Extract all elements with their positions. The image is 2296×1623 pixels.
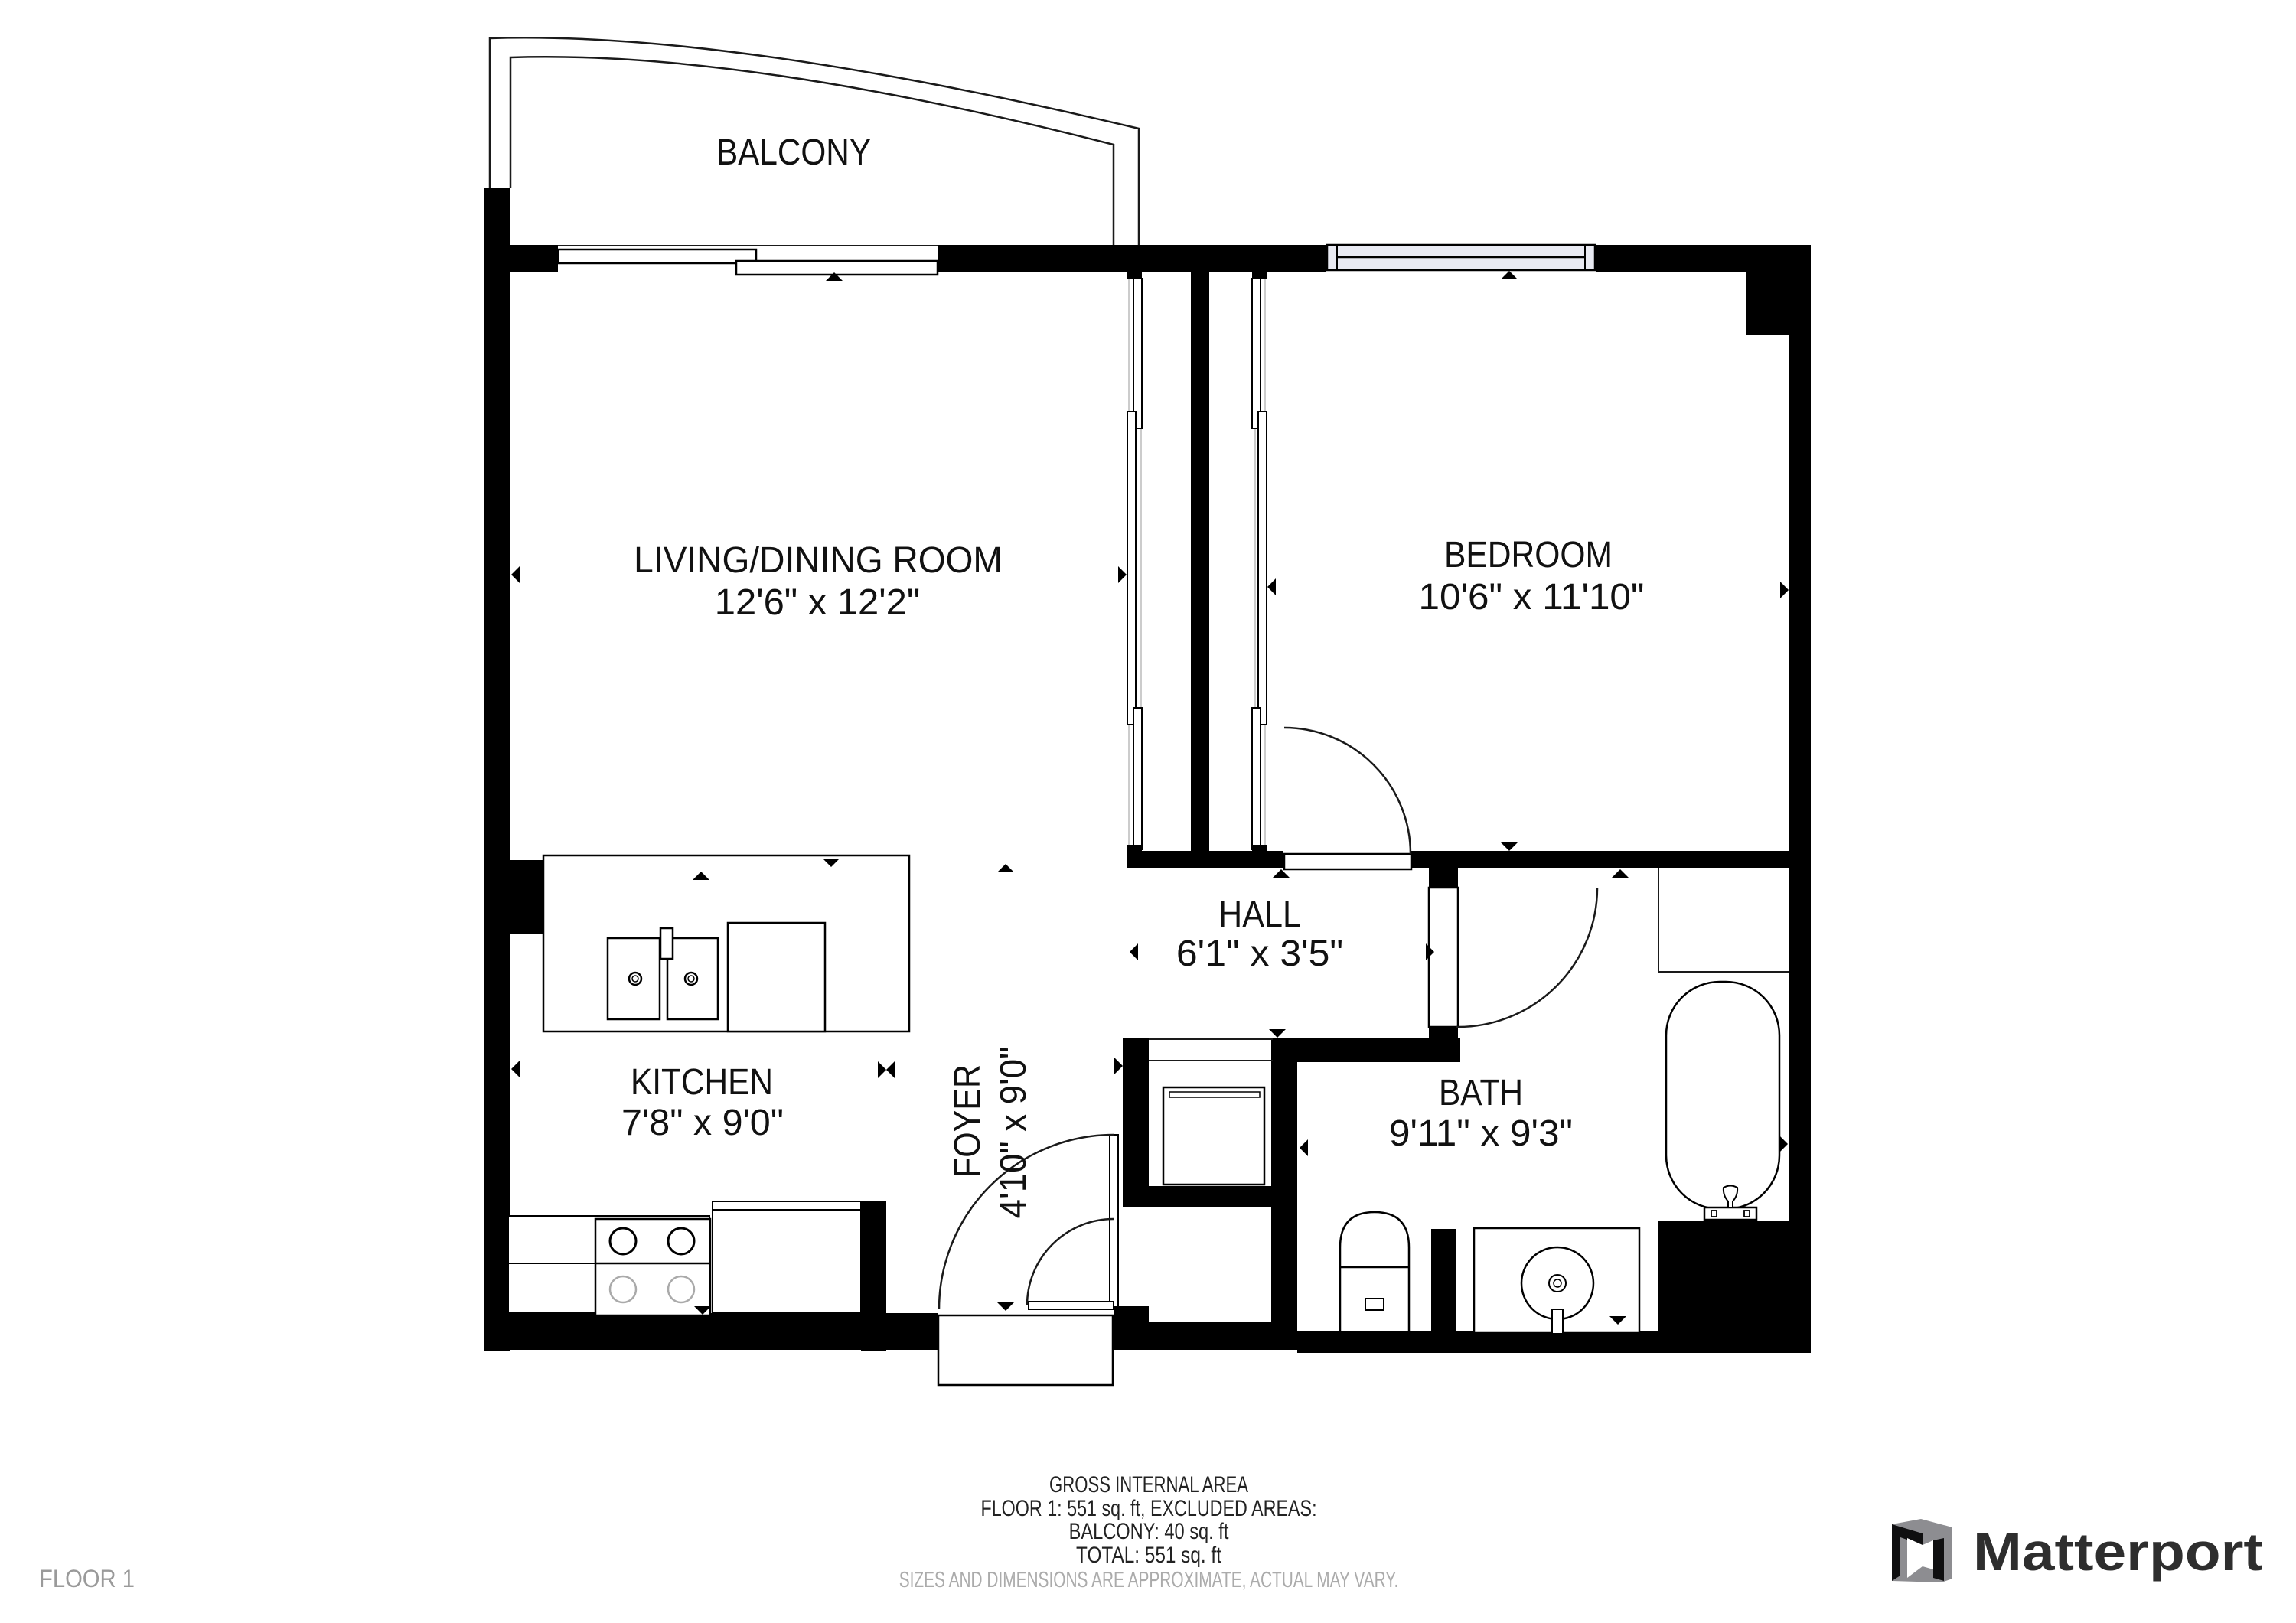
svg-text:12'6" x 12'2": 12'6" x 12'2" bbox=[715, 582, 920, 622]
svg-text:7'8" x 9'0": 7'8" x 9'0" bbox=[621, 1102, 784, 1143]
svg-text:9'11" x 9'3": 9'11" x 9'3" bbox=[1389, 1113, 1573, 1154]
svg-text:BEDROOM: BEDROOM bbox=[1444, 534, 1613, 575]
svg-text:HALL: HALL bbox=[1218, 894, 1301, 935]
svg-text:KITCHEN: KITCHEN bbox=[631, 1061, 773, 1103]
svg-text:SIZES AND DIMENSIONS ARE APPRO: SIZES AND DIMENSIONS ARE APPROXIMATE, AC… bbox=[899, 1568, 1399, 1592]
svg-text:BALCONY: BALCONY bbox=[716, 131, 871, 172]
svg-text:Matterport: Matterport bbox=[1973, 1522, 2263, 1582]
svg-text:FOYER: FOYER bbox=[947, 1064, 988, 1178]
svg-text:FLOOR 1: 551 sq. ft, EXCLUDED: FLOOR 1: 551 sq. ft, EXCLUDED AREAS: bbox=[980, 1495, 1316, 1521]
svg-text:TOTAL: 551 sq. ft: TOTAL: 551 sq. ft bbox=[1076, 1542, 1221, 1568]
svg-text:6'1" x 3'5": 6'1" x 3'5" bbox=[1176, 934, 1343, 974]
svg-text:BATH: BATH bbox=[1439, 1072, 1523, 1113]
svg-text:LIVING/DINING ROOM: LIVING/DINING ROOM bbox=[634, 539, 1003, 580]
svg-text:FLOOR 1: FLOOR 1 bbox=[39, 1566, 135, 1593]
svg-text:BALCONY: 40 sq. ft: BALCONY: 40 sq. ft bbox=[1069, 1518, 1229, 1543]
svg-text:10'6" x 11'10": 10'6" x 11'10" bbox=[1419, 577, 1645, 618]
svg-text:4'10" x 9'0": 4'10" x 9'0" bbox=[993, 1047, 1033, 1219]
svg-text:GROSS INTERNAL AREA: GROSS INTERNAL AREA bbox=[1049, 1471, 1248, 1498]
